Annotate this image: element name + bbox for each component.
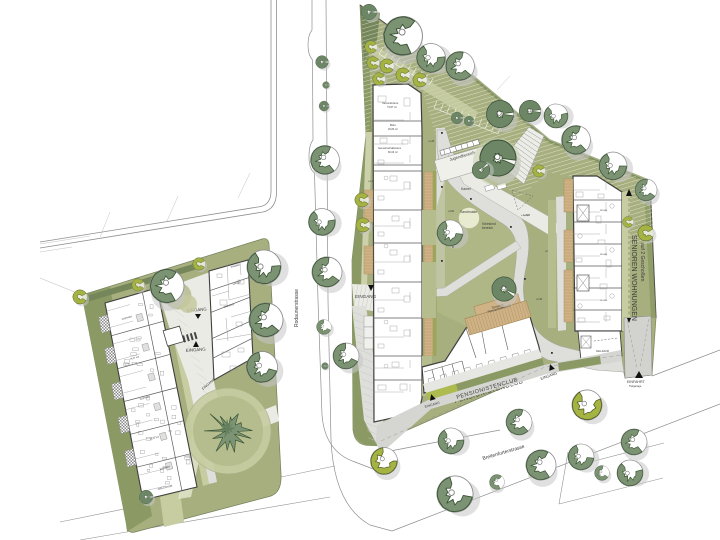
svg-text:73,87 m²: 73,87 m² [387,106,397,109]
svg-text:EINGANG: EINGANG [355,294,377,299]
svg-text:Tiefgarage: Tiefgarage [629,384,642,388]
svg-text:Gemeinschaftsraum: Gemeinschaftsraum [378,146,401,150]
svg-text:Breitenfurterstrasse: Breitenfurterstrasse [482,444,526,462]
svg-text:Büro: Büro [390,123,396,127]
svg-text:bereich: bereich [482,226,493,230]
svg-text:WOHN: WOHN [600,300,607,302]
svg-text:Kamel: Kamel [461,187,471,191]
svg-text:60,04 m²: 60,04 m² [388,151,398,154]
svg-text:SENIOREN WOHNUNGEN: SENIOREN WOHNUNGEN [630,235,637,321]
svg-text:auf 2 Geschoßen: auf 2 Geschoßen [639,243,645,282]
svg-text:WOHN: WOHN [600,210,607,212]
svg-text:WOHN: WOHN [600,254,607,256]
svg-text:EINFAHRT: EINFAHRT [627,380,646,384]
svg-text:+0,30: +0,30 [536,298,543,301]
svg-text:+1,35: +1,35 [428,140,435,143]
svg-text:20,84 m²: 20,84 m² [388,128,398,131]
svg-text:+1,20: +1,20 [524,214,531,217]
svg-text:Rodaunerstrasse: Rodaunerstrasse [294,289,300,327]
svg-text:Sandmulde: Sandmulde [460,210,477,214]
svg-text:KELLRAUM: KELLRAUM [596,350,609,353]
svg-text:+0,80: +0,80 [448,210,455,213]
svg-text:Vereinsbüros: Vereinsbüros [382,101,399,105]
